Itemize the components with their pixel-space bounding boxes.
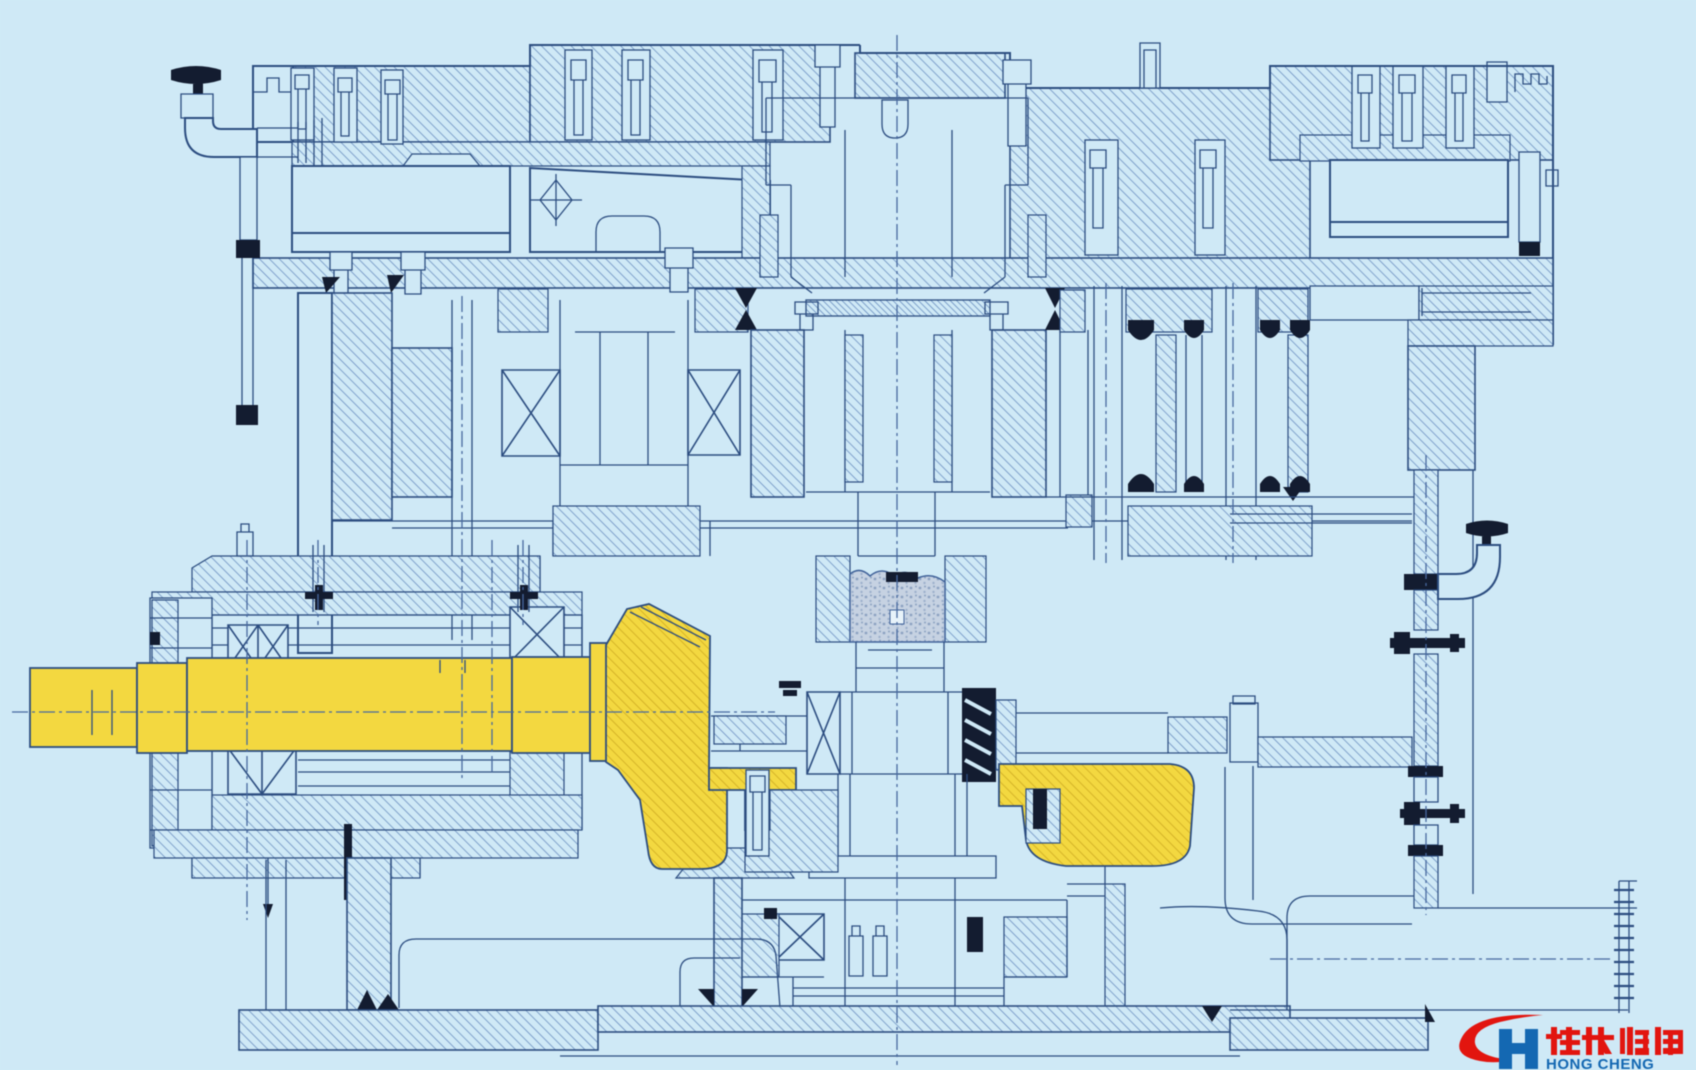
svg-text:HONG CHENG: HONG CHENG <box>1546 1056 1654 1070</box>
